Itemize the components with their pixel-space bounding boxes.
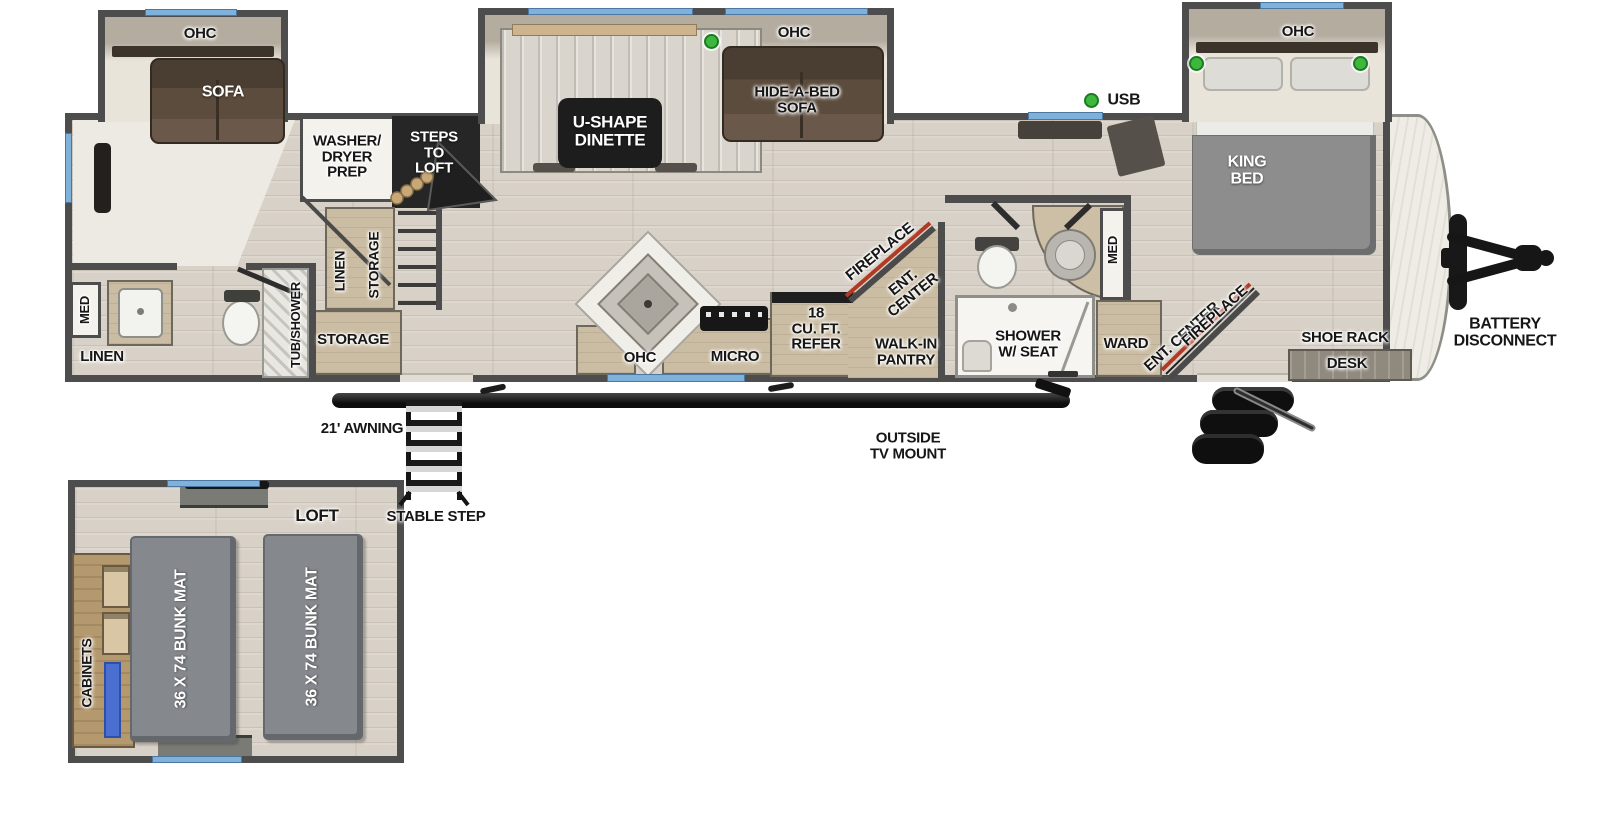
stairwell-wall (436, 205, 442, 310)
indicator-dot-usb (1084, 93, 1099, 108)
loft-cabinet-blue-door (104, 662, 121, 738)
window-loft-top (167, 480, 260, 487)
floorplan: OHC SOFA U-SHAPE DINETTE OHC HIDE-A-BED … (0, 0, 1600, 821)
entry-steps-3 (1192, 434, 1264, 464)
tv (94, 143, 111, 213)
front-bath-right-wall (309, 263, 316, 380)
entry-door-gap-main (400, 373, 473, 382)
label-walk-in-pantry: WALK-IN PANTRY (875, 336, 937, 367)
shower-head (1008, 303, 1017, 312)
loft-landing-top (180, 487, 268, 508)
front-bath-top-wall (65, 263, 177, 270)
label-hide-a-bed-sofa: HIDE-A-BED SOFA (754, 84, 839, 115)
label-sofa: SOFA (202, 85, 244, 102)
indicator-dot-king-left (1189, 56, 1204, 71)
indicator-dot-dinette (704, 34, 719, 49)
stove-grill (700, 306, 768, 331)
front-cap (1386, 114, 1452, 381)
label-storage-closet: STORAGE (367, 232, 382, 299)
label-steps-to-loft: STEPS TO LOFT (410, 130, 458, 177)
dinette-valance (512, 24, 697, 36)
window-loft-bottom (152, 756, 242, 763)
window-king-slide (1260, 2, 1344, 9)
window-hide-a-bed (725, 8, 868, 15)
label-linen-closet: LINEN (333, 251, 348, 292)
bedroom-dresser (1018, 121, 1102, 139)
label-bunk-right: 36 X 74 BUNK MAT (305, 568, 322, 707)
label-micro: MICRO (711, 349, 760, 365)
entry-door-gap-bedroom (1197, 373, 1292, 382)
label-king-bed: KING BED (1228, 154, 1267, 187)
loft-cabinet-cubby-1 (102, 565, 130, 608)
kitchen-sink-drain (644, 300, 652, 308)
label-ward: WARD (1104, 336, 1149, 352)
label-tub-shower: TUB/SHOWER (289, 282, 303, 368)
label-med-front: MED (78, 296, 92, 324)
window-front-left (65, 133, 72, 203)
king-bed-blanket (1192, 135, 1376, 255)
dinette-slide-marker-right (655, 163, 697, 172)
label-shoe-rack: SHOE RACK (1301, 330, 1388, 346)
label-ohc-front-slide: OHC (184, 26, 216, 42)
label-loft: LOFT (295, 507, 338, 525)
toilet-mid (977, 245, 1017, 289)
entry-steps-2 (1200, 410, 1278, 437)
hitch (1441, 214, 1554, 310)
indicator-dot-king-right (1353, 56, 1368, 71)
label-med-bath: MED (1106, 236, 1120, 264)
shower-seat (962, 340, 992, 372)
label-awning: 21' AWNING (321, 421, 404, 437)
label-cabinets: CABINETS (80, 638, 95, 707)
pantry-right-wall (938, 222, 945, 378)
label-stable-step: STABLE STEP (387, 509, 486, 525)
loft-cabinet-cubby-2 (102, 612, 130, 655)
king-ohc-cabinet (1196, 42, 1378, 53)
label-usb: USB (1108, 93, 1141, 110)
label-washer-dryer: WASHER/ DRYER PREP (313, 134, 381, 181)
window-kitchen (607, 374, 745, 382)
stable-step-rungs (406, 400, 462, 500)
label-refer: 18 CU. FT. REFER (791, 306, 840, 353)
label-ohc-hide-a-bed: OHC (778, 25, 810, 41)
front-bath-faucet (137, 308, 144, 315)
toilet-front (222, 300, 260, 346)
awning-arm-2 (768, 382, 795, 392)
refrigerator-top (772, 292, 853, 303)
label-ohc-kitchen: OHC (624, 350, 656, 366)
label-outside-tv: OUTSIDE TV MOUNT (870, 430, 946, 461)
window-bedroom-top (1028, 112, 1103, 120)
sofa-ohc-cabinet (112, 46, 274, 57)
bath-sink-bowl (1055, 240, 1085, 270)
label-battery-disconnect: BATTERY DISCONNECT (1454, 316, 1557, 349)
label-bunk-left: 36 X 74 BUNK MAT (174, 570, 191, 709)
label-u-shape-dinette: U-SHAPE DINETTE (573, 113, 647, 148)
label-linen-front: LINEN (80, 349, 124, 365)
window-dinette (528, 8, 693, 15)
king-pillow-left (1203, 57, 1283, 91)
toilet-front-tank (224, 290, 260, 302)
label-ohc-king: OHC (1282, 24, 1314, 40)
label-desk: DESK (1327, 356, 1367, 372)
label-shower-seat: SHOWER W/ SEAT (995, 328, 1061, 359)
bath-top-wall (945, 195, 1130, 203)
label-storage: STORAGE (317, 332, 389, 348)
window-sofa-slide (145, 9, 237, 16)
stove-burners (706, 312, 762, 317)
